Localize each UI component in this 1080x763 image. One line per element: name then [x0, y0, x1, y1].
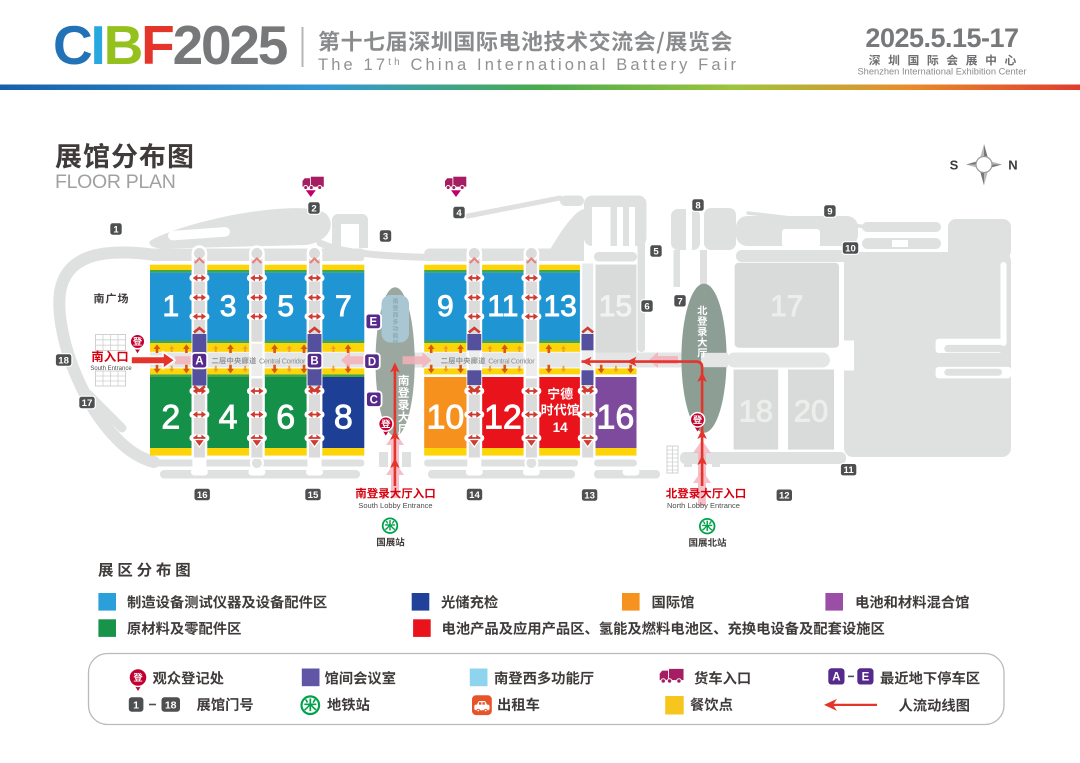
- svg-text:6: 6: [644, 302, 649, 313]
- svg-text:17: 17: [82, 398, 93, 409]
- svg-text:12: 12: [484, 399, 522, 437]
- svg-text:8: 8: [695, 201, 701, 212]
- svg-text:20: 20: [794, 394, 828, 429]
- svg-text:4: 4: [456, 208, 462, 219]
- svg-text:7: 7: [677, 296, 682, 307]
- svg-text:Shenzhen International Exhibit: Shenzhen International Exhibition Center: [857, 67, 1026, 77]
- svg-text:CIBF2025: CIBF2025: [53, 14, 288, 76]
- svg-text:18: 18: [165, 700, 177, 712]
- svg-text:8: 8: [334, 399, 353, 437]
- svg-text:1: 1: [162, 290, 179, 323]
- svg-text:A: A: [195, 356, 203, 368]
- svg-text:17: 17: [770, 290, 803, 323]
- svg-text:1: 1: [113, 225, 119, 236]
- svg-text:FLOOR PLAN: FLOOR PLAN: [55, 171, 176, 193]
- svg-text:2: 2: [161, 399, 180, 437]
- svg-text:14: 14: [553, 420, 569, 435]
- svg-text:11: 11: [844, 465, 855, 476]
- svg-text:C: C: [370, 394, 378, 406]
- svg-text:18: 18: [58, 356, 69, 367]
- svg-text:5: 5: [653, 247, 659, 258]
- svg-text:6: 6: [276, 399, 295, 437]
- svg-text:B: B: [310, 356, 318, 368]
- svg-text:N: N: [1008, 158, 1017, 173]
- svg-text:Central Corridor: Central Corridor: [259, 356, 306, 365]
- svg-text:South Entrance: South Entrance: [90, 366, 132, 372]
- svg-text:E: E: [369, 317, 377, 329]
- svg-text:3: 3: [383, 232, 388, 243]
- svg-text:A: A: [832, 672, 840, 684]
- svg-text:16: 16: [197, 490, 208, 501]
- svg-text:11: 11: [487, 290, 518, 323]
- svg-text:15: 15: [599, 290, 632, 323]
- svg-text:3: 3: [220, 290, 237, 323]
- svg-text:13: 13: [544, 290, 577, 323]
- svg-text:1: 1: [133, 700, 139, 712]
- svg-text:14: 14: [469, 490, 480, 501]
- svg-text:15: 15: [308, 490, 319, 501]
- svg-text:18: 18: [739, 394, 773, 429]
- svg-text:4: 4: [219, 399, 238, 437]
- svg-text:13: 13: [584, 491, 595, 502]
- svg-text:10: 10: [426, 399, 464, 437]
- svg-text:16: 16: [596, 399, 634, 437]
- svg-text:2: 2: [311, 204, 316, 215]
- svg-text:9: 9: [827, 207, 832, 218]
- svg-text:The 17th China International B: The 17th China International Battery Fai…: [318, 56, 737, 74]
- svg-text:North Lobby Entrance: North Lobby Entrance: [667, 501, 740, 510]
- svg-text:South Lobby Entrance: South Lobby Entrance: [358, 501, 432, 510]
- svg-text:Central Corridor: Central Corridor: [488, 356, 535, 365]
- svg-text:5: 5: [277, 290, 294, 323]
- svg-text:S: S: [950, 158, 959, 173]
- svg-text:D: D: [368, 356, 376, 368]
- svg-text:9: 9: [437, 290, 454, 323]
- svg-text:12: 12: [779, 491, 790, 502]
- svg-text:10: 10: [845, 244, 856, 255]
- svg-text:7: 7: [335, 290, 352, 323]
- svg-text:E: E: [862, 672, 870, 684]
- svg-text:2025.5.15-17: 2025.5.15-17: [865, 23, 1018, 53]
